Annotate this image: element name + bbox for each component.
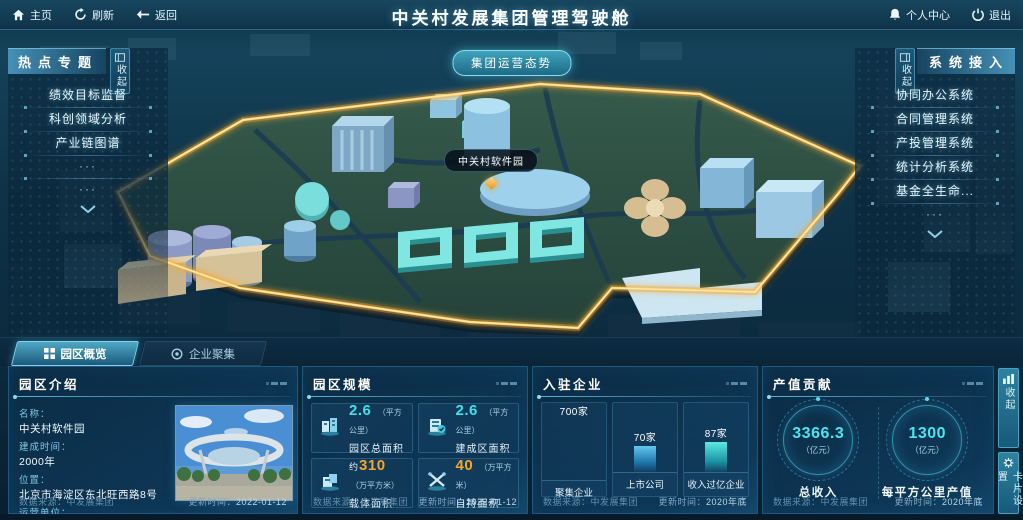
map-marker[interactable]: 中关村软件园: [437, 149, 545, 188]
header-underline: [539, 396, 751, 397]
system-item[interactable]: 协同办公系统: [855, 84, 1015, 107]
back-label: 返回: [155, 7, 177, 23]
system-access-panel: 系统接入 收起 协同办公系统 合同管理系统 产投管理系统 统计分析系统 基金全生…: [855, 48, 1015, 340]
park-intro-panel: 园区介绍 名称： 中关村软件园 建成时间： 2000年 位置： 北京市海淀区东北…: [8, 366, 298, 514]
gauge-ring: 3366.3 （亿元）: [783, 405, 853, 475]
panel-footer: 数据来源：中发展集团 更新时间：2020年底: [533, 495, 757, 508]
hot-topics-panel: 热点专题 收起 绩效目标监督 科创领域分析 产业链图谱 ··· ···: [8, 48, 168, 340]
system-access-list: 协同办公系统 合同管理系统 产投管理系统 统计分析系统 基金全生命... ···: [855, 84, 1015, 238]
updated-time: 更新时间：2022-01-12: [188, 495, 287, 508]
gauge-value: 1300: [908, 425, 946, 443]
topbar-left-group: 主页 刷新 返回: [12, 7, 177, 23]
bar: [634, 446, 656, 472]
top-bar: 主页 刷新 返回 中关村发展集团管理驾驶舱 个人中心 退出: [0, 0, 1023, 30]
logout-label: 退出: [989, 7, 1011, 23]
panel-title: 园区规模: [313, 374, 373, 393]
bar-label: 上市公司: [613, 472, 677, 496]
bar: [705, 442, 727, 472]
header-underline: [309, 396, 521, 397]
header-underline: [15, 396, 291, 397]
tab-label: 企业聚集: [189, 346, 235, 362]
bar-label: 收入过亿企业: [684, 472, 748, 496]
updated-time: 更新时间：2020年底: [658, 495, 747, 508]
bar: [563, 420, 585, 480]
more-items-ellipsis[interactable]: ···: [8, 156, 168, 178]
stat-prefix: 约: [349, 462, 358, 472]
more-items-ellipsis[interactable]: ···: [855, 204, 1015, 226]
hot-topics-header: 热点专题: [8, 48, 106, 74]
list-divider: [871, 203, 999, 204]
back-button[interactable]: 返回: [136, 7, 177, 23]
collapse-icon: [115, 53, 125, 62]
collapse-icon: [900, 53, 910, 62]
field-label: 位置：: [19, 472, 165, 486]
personal-center-button[interactable]: 个人中心: [889, 7, 950, 23]
topbar-right-group: 个人中心 退出: [889, 7, 1011, 23]
header-decoration: [726, 382, 747, 385]
header-decoration: [962, 382, 983, 385]
personal-center-label: 个人中心: [906, 7, 950, 23]
stat-built-area: 2.6 （平方公里） 建成区面积: [418, 403, 520, 453]
header-decoration: [496, 382, 517, 385]
panel-footer: 数据来源：中发展集团 更新时间：2022-01-12: [9, 495, 297, 508]
tab-enterprise-cluster[interactable]: 企业聚集: [142, 341, 264, 366]
refresh-icon: [74, 8, 87, 21]
gauge-output-per-km: 1300 （亿元） 每平方公里产值: [882, 405, 973, 500]
stat-value: 40: [456, 457, 474, 474]
back-arrow-icon: [136, 9, 150, 20]
collapse-label: 收起: [1001, 387, 1016, 411]
system-item[interactable]: 统计分析系统: [855, 156, 1015, 179]
stat-value: 2.6: [349, 402, 371, 419]
data-source: 数据来源：中发展集团: [773, 495, 868, 508]
gauge-unit: （亿元）: [801, 444, 835, 456]
stat-value: 2.6: [456, 402, 478, 419]
list-divider: [24, 107, 152, 108]
enterprise-bar-chart: 700家 聚集企业 70家 上市公司 87家 收入过亿企业: [533, 397, 757, 497]
chevron-down-icon[interactable]: [80, 205, 96, 213]
data-source: 数据来源：中发展集团: [543, 495, 638, 508]
crossed-tools-icon: [425, 470, 449, 497]
hot-topic-item[interactable]: 产业链图谱: [8, 132, 168, 155]
refresh-button[interactable]: 刷新: [74, 7, 114, 23]
power-icon: [972, 8, 984, 21]
hot-topics-list: 绩效目标监督 科创领域分析 产业链图谱 ··· ···: [8, 84, 168, 213]
updated-time: 更新时间：2020年底: [894, 495, 983, 508]
bottom-tab-bar: 园区概览 企业聚集: [0, 337, 1023, 366]
park-scale-panel: 园区规模 2.6 （平方公里） 园区总面积 2.6 （: [302, 366, 528, 514]
enterprise-icon: [171, 348, 183, 360]
buildings-icon: [318, 415, 342, 442]
panel-footer: 数据来源：中发展集团 更新时间：2020年底: [763, 495, 993, 508]
list-divider: [24, 178, 152, 179]
stat-unit: （万平方米）: [351, 481, 399, 490]
bar-card: 70家 上市公司: [612, 402, 678, 497]
grid-icon: [44, 348, 55, 359]
carrier-box-icon: [318, 470, 342, 497]
card-settings-button[interactable]: 卡片设置: [998, 452, 1019, 514]
panel-title: 产值贡献: [773, 374, 833, 393]
output-value-panel: 产值贡献 3366.3 （亿元） 总收入 1300 （亿元） 每平方公里产值 数…: [762, 366, 994, 514]
bell-icon: [889, 8, 901, 21]
gauge-ring: 1300 （亿元）: [892, 405, 962, 475]
list-divider: [24, 131, 152, 132]
page-title: 中关村发展集团管理驾驶舱: [392, 4, 632, 29]
chevron-down-icon[interactable]: [927, 230, 943, 238]
home-icon: [12, 9, 25, 21]
tab-label: 园区概览: [61, 346, 107, 362]
field-value: 2000年: [19, 454, 165, 469]
bar-card: 700家 聚集企业: [541, 402, 607, 497]
hot-topic-item[interactable]: 绩效目标监督: [8, 84, 168, 107]
map-marker-label: 中关村软件园: [444, 149, 538, 172]
system-item[interactable]: 合同管理系统: [855, 108, 1015, 131]
group-operation-button[interactable]: 集团运营态势: [452, 50, 571, 76]
updated-time: 更新时间：2022-01-12: [418, 495, 517, 508]
chart-icon: [1003, 374, 1014, 384]
more-items-ellipsis[interactable]: ···: [8, 179, 168, 201]
field-value: 中关村软件园: [19, 421, 165, 436]
panel-title: 入驻企业: [543, 374, 603, 393]
list-divider: [871, 179, 999, 180]
field-label: 建成时间：: [19, 439, 165, 453]
gear-icon: [1003, 458, 1014, 468]
home-button[interactable]: 主页: [12, 7, 52, 23]
panel-title: 园区介绍: [19, 374, 79, 393]
data-source: 数据来源：中发展集团: [19, 495, 114, 508]
list-divider: [871, 131, 999, 132]
system-access-header: 系统接入: [917, 48, 1015, 74]
bar-value: 70家: [634, 429, 657, 444]
system-item[interactable]: 产投管理系统: [855, 132, 1015, 155]
list-divider: [871, 155, 999, 156]
logout-button[interactable]: 退出: [972, 7, 1011, 23]
scale-stats-grid: 2.6 （平方公里） 园区总面积 2.6 （平方公里） 建成区面积: [303, 397, 527, 508]
stat-total-area: 2.6 （平方公里） 园区总面积: [311, 403, 413, 453]
tab-park-overview[interactable]: 园区概览: [14, 341, 136, 366]
park-photo: [175, 405, 293, 501]
data-source: 数据来源：中发展集团: [313, 495, 408, 508]
header-decoration: [266, 382, 287, 385]
refresh-label: 刷新: [92, 7, 114, 23]
field-label: 名称：: [19, 406, 165, 420]
hot-topic-item[interactable]: 科创领域分析: [8, 108, 168, 131]
stat-value: 310: [359, 457, 386, 474]
panel-footer: 数据来源：中发展集团 更新时间：2022-01-12: [303, 495, 527, 508]
bar-value: 700家: [560, 403, 589, 418]
bottom-strip: [0, 514, 1023, 520]
marker-pin-icon: [485, 177, 498, 190]
dashboard-root: 主页 刷新 返回 中关村发展集团管理驾驶舱 个人中心 退出: [0, 0, 1023, 520]
card-settings-label: 卡片设置: [994, 471, 1023, 513]
list-divider: [871, 107, 999, 108]
gauge-total-revenue: 3366.3 （亿元） 总收入: [783, 405, 853, 500]
home-label: 主页: [30, 7, 52, 23]
stat-label: 园区总面积: [349, 440, 406, 455]
resident-enterprises-panel: 入驻企业 700家 聚集企业 70家 上市公司 87家 收入过亿企业 数据来源：…: [532, 366, 758, 514]
gauge-value: 3366.3: [792, 425, 844, 443]
list-divider: [24, 155, 152, 156]
built-district-icon: [425, 415, 449, 442]
stat-label: 建成区面积: [456, 440, 513, 455]
bar-card: 87家 收入过亿企业: [683, 402, 749, 497]
gauge-unit: （亿元）: [910, 444, 944, 456]
output-gauges: 3366.3 （亿元） 总收入 1300 （亿元） 每平方公里产值: [763, 397, 993, 500]
system-item[interactable]: 基金全生命...: [855, 180, 1015, 203]
cards-collapse-button[interactable]: 收起: [998, 368, 1019, 448]
bar-value: 87家: [705, 425, 728, 440]
